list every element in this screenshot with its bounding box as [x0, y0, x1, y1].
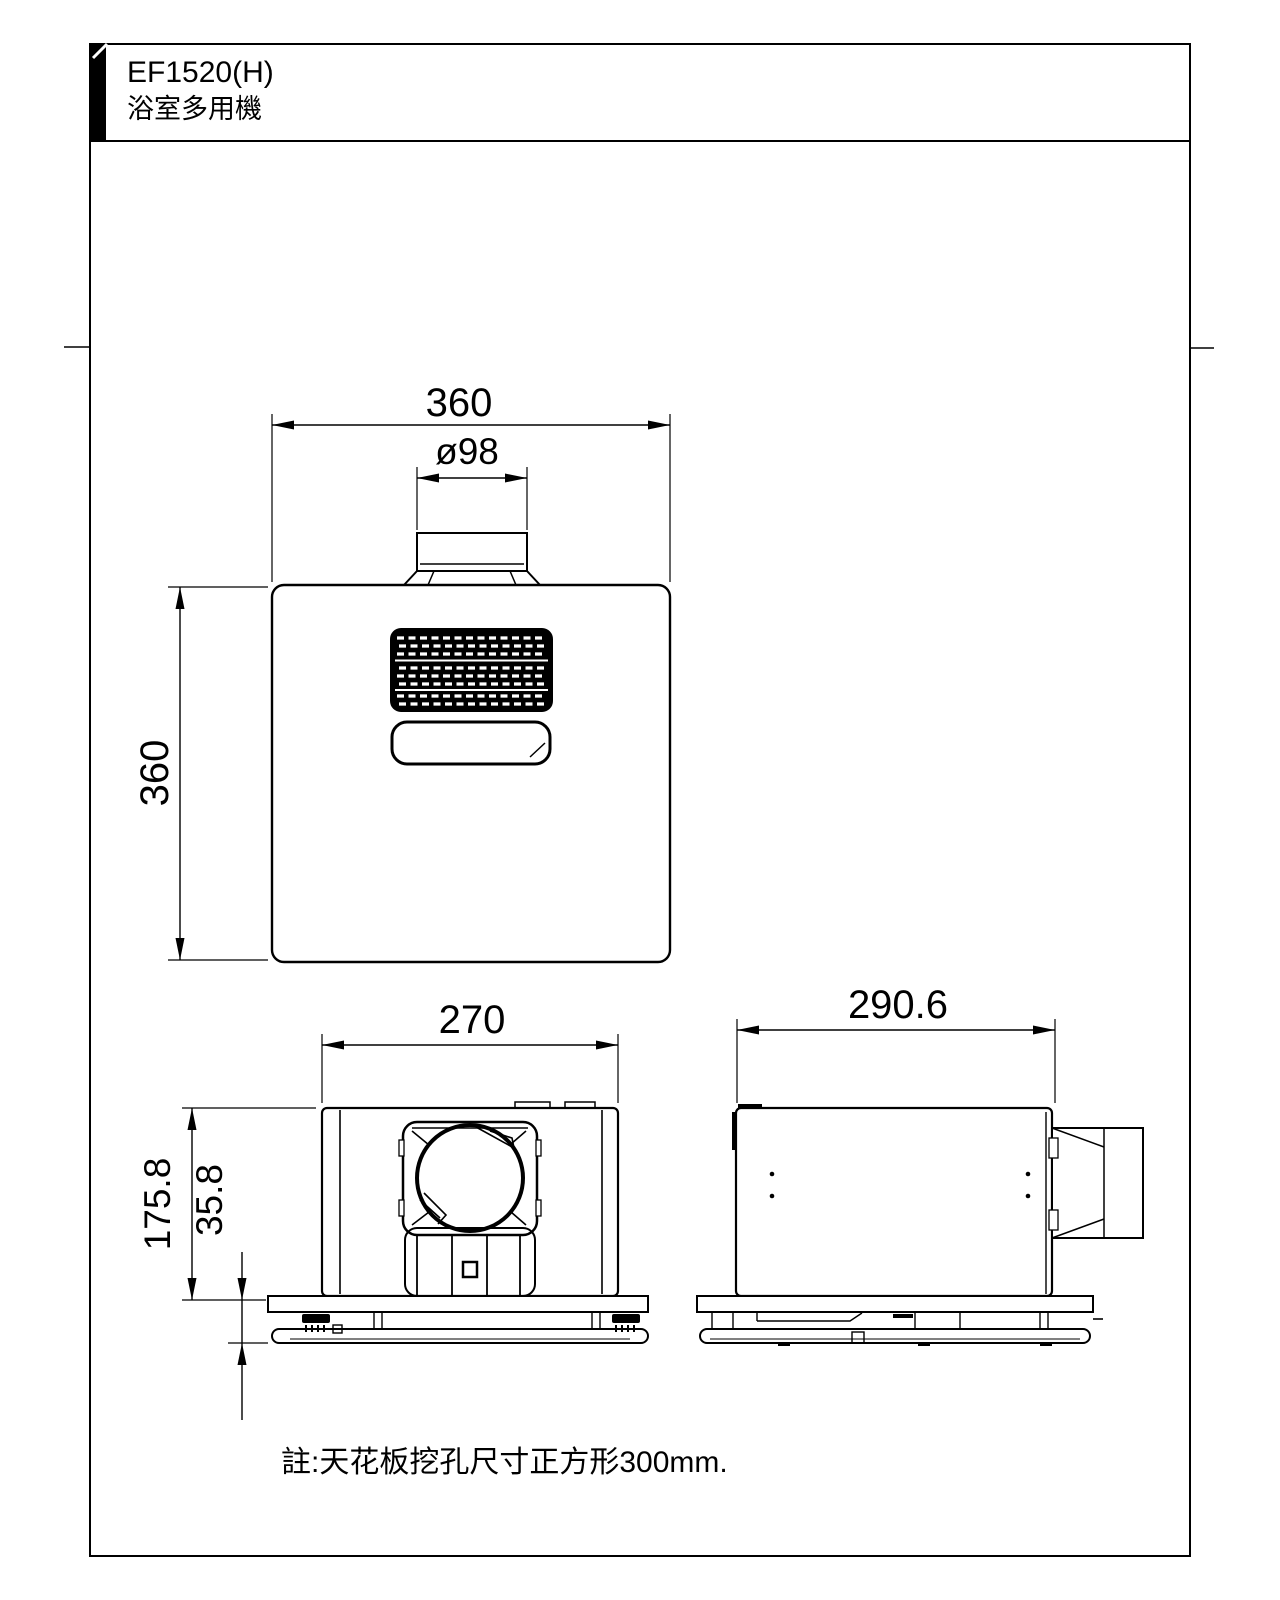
housing-port	[463, 1262, 477, 1277]
dim-label-unit-height: 175.8	[137, 1158, 178, 1251]
technical-drawing-canvas: EF1520(H) 浴室多用機	[0, 0, 1280, 1600]
dimension-side-depth: 290.6	[737, 983, 1055, 1103]
ceiling-panel	[272, 1329, 648, 1343]
fan-housing	[399, 1122, 541, 1235]
dim-label-top-width: 360	[426, 381, 493, 425]
dim-label-panel-height: 35.8	[189, 1164, 230, 1236]
louver-slot	[392, 722, 550, 764]
fan-inlet-circle	[417, 1125, 523, 1231]
drawing-sheet: EF1520(H) 浴室多用機	[0, 0, 1280, 1600]
dim-label-duct-diameter: ø98	[435, 431, 499, 472]
intake-grille	[390, 628, 553, 712]
duct-outlet	[1049, 1128, 1143, 1238]
dimension-top-height: 360	[133, 587, 268, 960]
ceiling-panel-side	[700, 1329, 1090, 1343]
mounting-clip-right	[612, 1314, 640, 1323]
dimension-duct-diameter: ø98	[417, 431, 527, 530]
front-flange	[268, 1296, 648, 1343]
dim-label-side-depth: 290.6	[848, 983, 948, 1027]
side-flange	[697, 1296, 1103, 1345]
title-block: EF1520(H) 浴室多用機	[127, 56, 274, 124]
product-name: 浴室多用機	[127, 94, 262, 124]
dimension-panel-height: 35.8	[189, 1164, 268, 1420]
dim-label-front-width: 270	[439, 998, 506, 1042]
top-view	[272, 533, 670, 962]
dimension-front-width: 270	[322, 998, 618, 1103]
duct-collar	[404, 533, 540, 585]
front-view	[268, 1102, 648, 1343]
mounting-clip-left	[302, 1314, 330, 1323]
title-block-bar	[90, 44, 106, 141]
model-number: EF1520(H)	[127, 56, 274, 89]
side-view	[697, 1106, 1143, 1345]
dim-label-top-height: 360	[133, 740, 177, 807]
dimension-top-width: 360	[272, 381, 670, 582]
note-text: 註:天花板挖孔尺寸正方形300mm.	[281, 1446, 728, 1479]
motor-housing-lower	[405, 1228, 535, 1296]
side-view-body	[736, 1108, 1052, 1296]
